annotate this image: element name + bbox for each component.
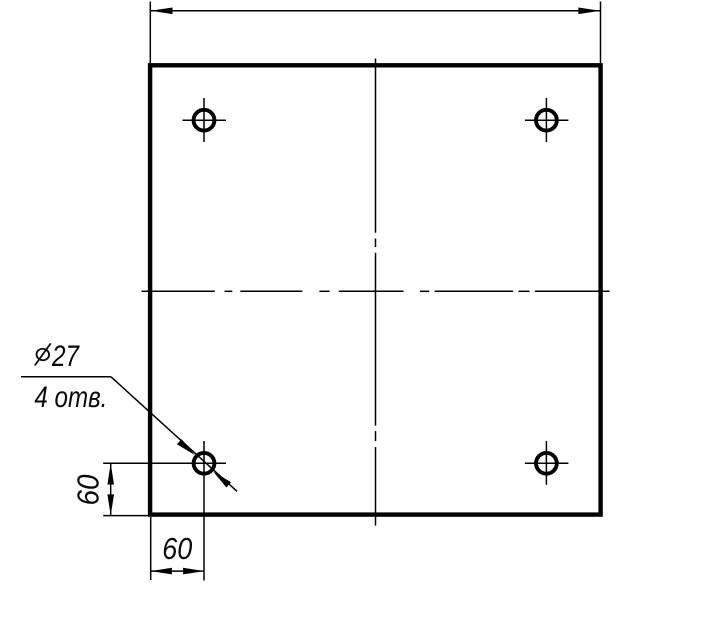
svg-text:60: 60 <box>71 475 106 506</box>
svg-text:4 отв.: 4 отв. <box>34 381 107 414</box>
svg-text:27: 27 <box>51 340 80 373</box>
svg-text:60: 60 <box>162 531 192 566</box>
